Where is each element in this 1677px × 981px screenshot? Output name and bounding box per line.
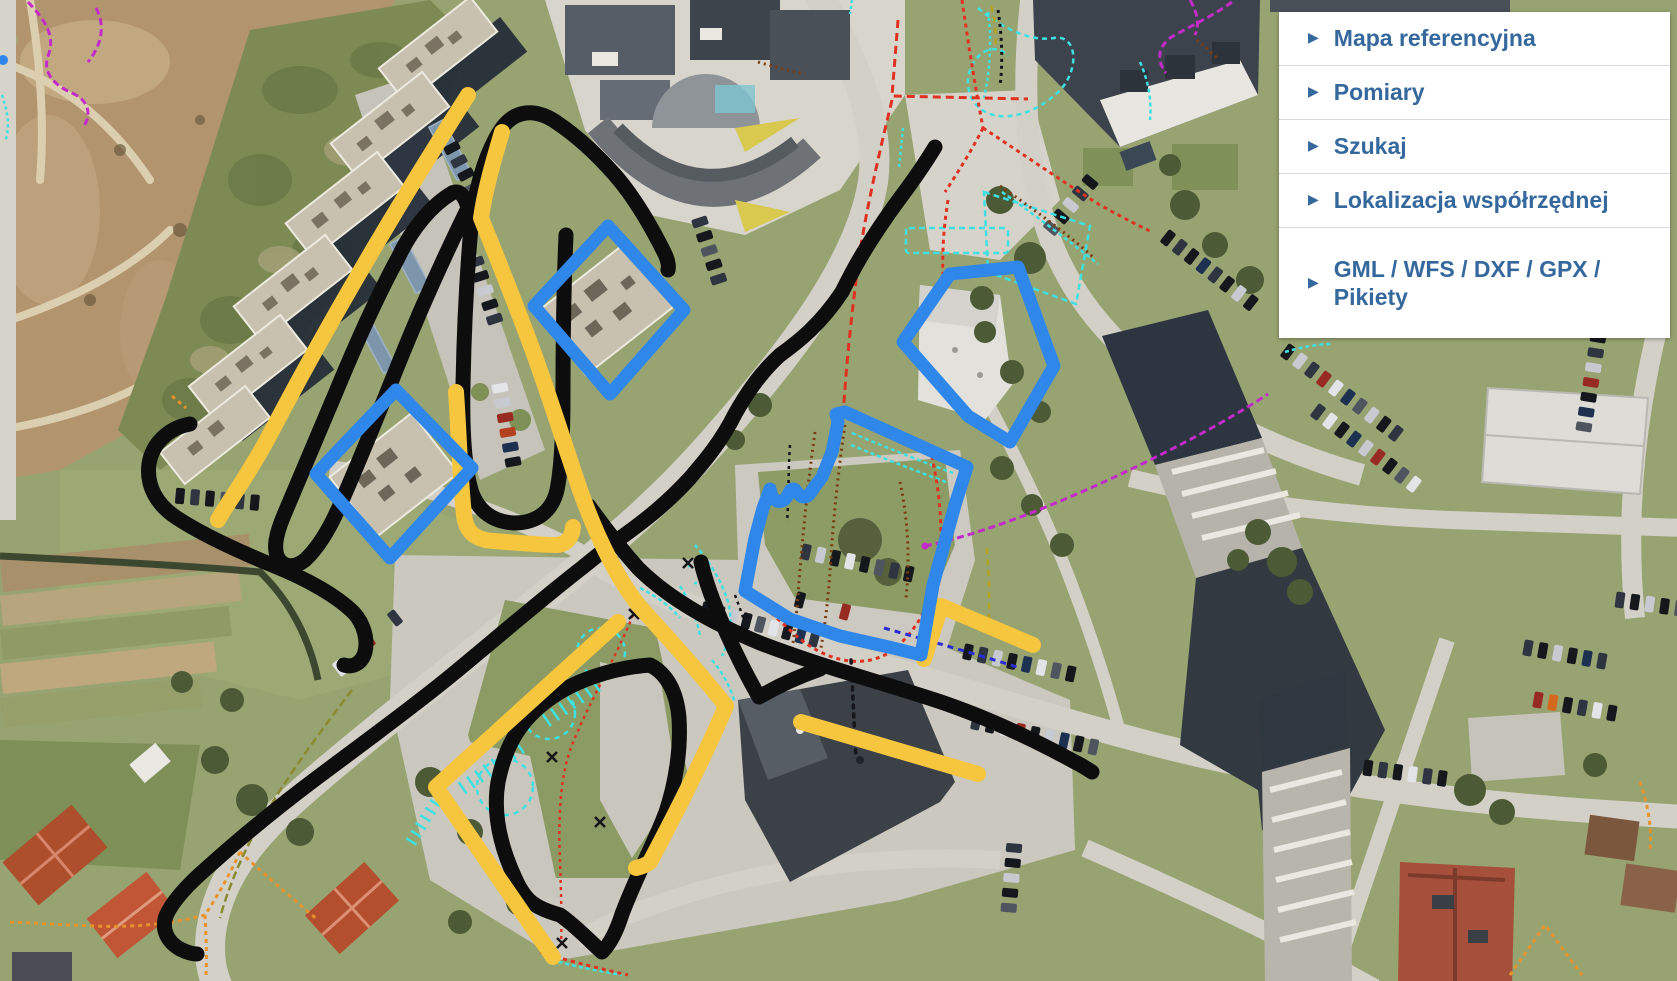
side-menu-panel: ▶ Mapa referencyjna ▶ Pomiary ▶ Szukaj ▶…: [1279, 12, 1670, 338]
menu-item-label: GML / WFS / DXF / GPX / Pikiety: [1334, 255, 1656, 311]
menu-item-label: Szukaj: [1334, 132, 1407, 160]
menu-item-label: Lokalizacja współrzędnej: [1334, 186, 1609, 214]
menu-item-szukaj[interactable]: ▶ Szukaj: [1279, 120, 1670, 174]
menu-item-label: Mapa referencyjna: [1334, 24, 1536, 52]
expand-arrow-icon: ▶: [1308, 191, 1319, 208]
menu-item-lokalizacja[interactable]: ▶ Lokalizacja współrzędnej: [1279, 174, 1670, 228]
gis-app-window: ▶ Mapa referencyjna ▶ Pomiary ▶ Szukaj ▶…: [0, 0, 1677, 981]
expand-arrow-icon: ▶: [1308, 29, 1319, 46]
menu-item-pomiary[interactable]: ▶ Pomiary: [1279, 66, 1670, 120]
menu-item-gml-wfs-dxf-gpx[interactable]: ▶ GML / WFS / DXF / GPX / Pikiety: [1279, 228, 1670, 338]
expand-arrow-icon: ▶: [1308, 83, 1319, 100]
menu-item-mapa-referencyjna[interactable]: ▶ Mapa referencyjna: [1279, 12, 1670, 66]
menu-item-label: Pomiary: [1334, 78, 1425, 106]
expand-arrow-icon: ▶: [1308, 137, 1319, 154]
expand-arrow-icon: ▶: [1308, 274, 1319, 291]
